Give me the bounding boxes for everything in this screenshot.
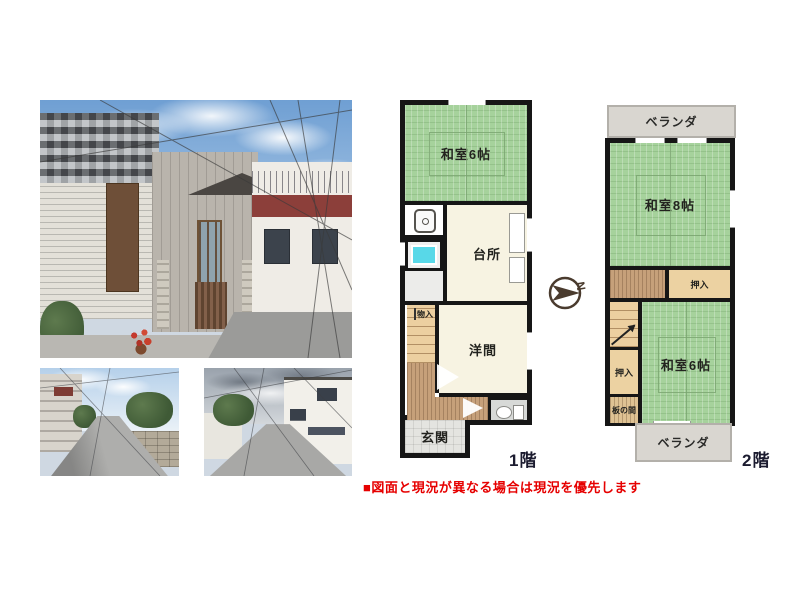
veranda-top-2f: ベランダ bbox=[607, 105, 736, 138]
bathtub-icon bbox=[411, 245, 437, 265]
stairs-arrow bbox=[611, 325, 635, 345]
window-opening bbox=[527, 218, 532, 252]
kitchen-counter bbox=[509, 257, 525, 283]
floor-label-1f: 1階 bbox=[509, 446, 537, 471]
toilet-1f bbox=[488, 397, 527, 420]
kitchen-counter bbox=[509, 213, 525, 253]
window-opening bbox=[448, 100, 486, 105]
room-itanoma-2f: 板の間 bbox=[610, 397, 638, 423]
tatami-seam bbox=[636, 175, 705, 236]
floor-label-2f: 2階 bbox=[742, 446, 770, 471]
room-label: 玄関 bbox=[421, 427, 449, 446]
toilet-tank-icon bbox=[513, 405, 524, 420]
toilet-icon bbox=[496, 406, 512, 419]
window-opening bbox=[677, 138, 707, 143]
floorplan-1f: 和室6帖 台所 物入 洋間 bbox=[400, 100, 532, 460]
street-photo-left bbox=[40, 368, 179, 476]
washroom-1f bbox=[405, 205, 443, 235]
bathroom-1f bbox=[405, 239, 443, 271]
power-lines bbox=[40, 100, 352, 358]
window-opening bbox=[527, 332, 532, 370]
veranda-bottom-2f: ベランダ bbox=[635, 423, 732, 462]
svg-text:N: N bbox=[573, 281, 588, 292]
compass-icon: N bbox=[546, 272, 588, 314]
tatami-seam bbox=[429, 132, 504, 176]
room-label: 洋間 bbox=[469, 340, 497, 359]
room-washitsu6-2f: 和室6帖 bbox=[642, 302, 730, 426]
tatami-seam bbox=[658, 337, 716, 394]
closet-oshiire-upper-2f: 押入 bbox=[669, 270, 730, 298]
room-label: 台所 bbox=[473, 244, 501, 263]
room-label: ベランダ bbox=[657, 434, 709, 451]
room-washitsu6-1f: 和室6帖 bbox=[405, 105, 527, 201]
listing-sheet: 和室6帖 台所 物入 洋間 bbox=[0, 0, 800, 600]
power-lines bbox=[40, 368, 179, 476]
landing-1f bbox=[405, 271, 443, 301]
closet-oshiire-lower-2f: 押入 bbox=[610, 350, 638, 394]
stairs-arrow bbox=[414, 308, 416, 320]
window-opening bbox=[400, 242, 405, 266]
room-label: 板の間 bbox=[612, 405, 636, 416]
hallway-1f bbox=[407, 363, 435, 420]
exterior-photo bbox=[40, 100, 352, 358]
room-kitchen-1f: 台所 bbox=[447, 205, 527, 301]
window-opening bbox=[730, 190, 735, 228]
floorplan-2f: ベランダ 和室8帖 押入 押入 板の間 和室6帖 bbox=[605, 100, 775, 465]
sink-drain bbox=[422, 218, 429, 225]
room-genkan-1f: 玄関 bbox=[405, 420, 465, 453]
window-opening bbox=[635, 138, 665, 143]
power-lines bbox=[204, 368, 352, 476]
room-label: 押入 bbox=[615, 366, 633, 379]
stairs-2f bbox=[610, 302, 638, 347]
room-label: 押入 bbox=[690, 278, 708, 291]
hallway-2f bbox=[610, 270, 665, 298]
street-photo-right bbox=[204, 368, 352, 476]
disclaimer-text: ■図面と現況が異なる場合は現況を優先します bbox=[363, 477, 641, 496]
room-label: ベランダ bbox=[645, 113, 697, 130]
room-label: 物入 bbox=[417, 309, 433, 320]
room-washitsu8-2f: 和室8帖 bbox=[610, 143, 730, 266]
